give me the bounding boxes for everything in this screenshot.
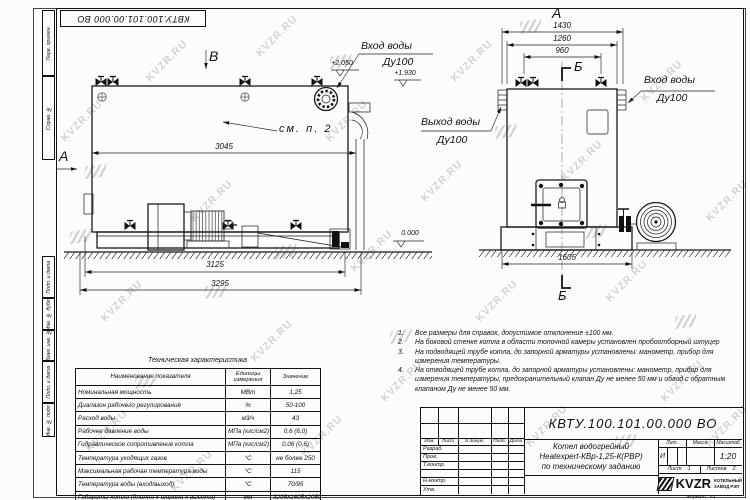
tech-table-cell: % [226,399,271,412]
tech-table-row: Температура воды (вход/выход)°С70/95 [76,478,321,491]
tech-table-cell: 0,6 (6,0) [271,425,321,438]
tech-table-cell: не более 250 [271,451,321,464]
frame-left-label: Подп. и дата [46,261,52,293]
frame-left-cell: Подп. и дата [42,256,55,298]
tb-title-line3: по техническому заданию [542,462,641,472]
tech-table-row: Диапазон рабочего регулирования%50-100 [76,399,321,412]
tech-table-cell: 0,06 (0,6) [271,438,321,451]
tech-table-row: Температура уходящих газов°Сне более 250 [76,451,321,464]
frame-left-label: Подп. и дата [46,366,52,398]
tech-table-cell: °С [226,478,271,491]
format-value: А3 [710,495,716,500]
level-2050: +2.050 [327,60,357,67]
frame-left-label: Перв. примен. [46,26,52,60]
tb-staff-razrab: Разраб. [421,445,460,453]
front-outlet-label: Выход воды [421,116,480,128]
note-item: 1.Все размеры для справок, допустимое от… [398,329,736,338]
tech-table-cell: 115 [271,465,321,478]
kvzr-logo-text: KVZR [676,476,711,491]
tech-table-cell: Диапазон рабочего регулирования [76,399,226,412]
dim-1260: 1260 [542,34,582,43]
tech-col-name: Наименование показателя [76,369,226,386]
tech-table-row: Гидравлическое сопротивление котлаМПа (к… [76,438,321,451]
frame-left-label: Инв. № дубл. [46,298,52,330]
dim-1605: 1605 [547,253,587,262]
view-label-b: В [209,48,218,64]
tb-staff-nkontr: Н.контр. [421,477,460,485]
frame-left-cell: Перв. примен. [42,10,55,76]
tb-sheet-label: Лист [667,466,681,472]
top-stamp-doc-number: КВТУ.100.101.00.000 ВО [77,14,190,24]
tb-staff-empty [421,469,460,477]
tech-table-cell: Габариты котла (длинна х ширина х высота… [76,491,226,500]
tech-table-cell: Номинальная мощность [76,386,226,399]
tb-title-line1: Котел водогрейный [553,442,629,452]
tech-table-cell: 1,25 [271,386,321,399]
format-label: Формат [687,495,706,500]
note-number: 1. [398,329,415,338]
tech-table-cell: м3/ч [226,412,271,425]
kvzr-company-line1: КОТЕЛЬНЫЙ [714,478,742,483]
tb-col-list: Лист [438,438,458,445]
frame-left-label: Взам. инв. № [46,329,52,361]
tb-staff-utv: Утв. [421,485,460,494]
top-document-stamp: КВТУ.100.101.00.000 ВО [60,10,206,27]
tb-col-podp: Подп. [491,438,508,445]
frame-left-cell: Инв. № подл. [42,403,55,437]
drawing-sheet: KVZR.RUKVZR.RUKVZR.RUKVZR.RUKVZR.RUKVZR.… [0,0,750,500]
tech-table-cell: МПа (кгс/см2) [226,425,271,438]
dim-3295: 3295 [200,279,240,288]
tech-table-cell: МВт [226,386,271,399]
front-inlet-label: Вход воды [644,74,695,86]
section-label-a: А [59,148,68,164]
kvzr-company-line2: ЗАВОД РЭП [714,484,742,489]
note-number: 2. [398,338,415,347]
note-text: На подводящей трубе котла, до запорной а… [415,348,736,367]
notes-list: 1.Все размеры для справок, допустимое от… [398,329,736,394]
tech-table-cell: Рабочее давление воды [76,425,226,438]
front-inlet-dn: Ду100 [657,92,687,104]
tech-col-value: Значение [271,369,321,386]
tech-table-cell: мм [226,491,271,500]
dim-960: 960 [544,46,580,55]
front-outlet-dn: Ду100 [437,134,467,146]
format-note: Формат А3 [658,495,744,500]
frame-left-cell: Инв. № дубл. [42,298,55,330]
tech-table-cell: °С [226,465,271,478]
tech-table-cell: 43 [271,412,321,425]
note-item: 4.На отводящей трубе котла, до запорной … [398,366,736,394]
view-label-a-front: А [552,5,561,21]
tech-table-cell: Максимальная рабочая температура воды [76,465,226,478]
tb-sheets-value: 2 [732,466,735,472]
note-number: 3. [398,348,415,367]
tb-staff-prov: Пров. [421,453,460,461]
tech-table-cell: 70/95 [271,478,321,491]
note-item: 3.На подводящей трубе котла, до запорной… [398,348,736,367]
tb-col-data: Дата [508,438,524,445]
see-note-label: см. п. 2 [279,123,332,135]
tb-col-izm: Изм. [421,438,438,445]
tech-table-row: Габариты котла (длинна х ширина х высота… [76,491,321,500]
tb-col-ndoc: N докум. [458,438,491,445]
tech-table-cell: °С [226,451,271,464]
tb-lit-header: Лит. [658,439,686,447]
frame-left-cell: Справ. № [42,76,55,160]
kvzr-company-name: КОТЕЛЬНЫЙ ЗАВОД РЭП [714,478,742,488]
tb-title: Котел водогрейный Heatexpert-КВр-1,25-К(… [524,439,658,475]
tech-table-cell: 3295х1605х2050 [271,491,321,500]
tb-logo-area: KVZR КОТЕЛЬНЫЙ ЗАВОД РЭП [658,473,742,494]
tech-table-cell: Расход воды [76,412,226,425]
note-text: На отводящей трубе котла, до запорной ар… [415,366,736,394]
tb-sheet-value: 1 [688,466,691,472]
tech-table-row: Расход водым3/ч43 [76,412,321,425]
section-label-b-bottom: Б [558,288,566,303]
dim-3045: 3045 [204,142,244,151]
tech-table-title: Техническая характеристика [75,357,320,364]
tech-table-row: Максимальная рабочая температура воды°С1… [76,465,321,478]
level-1930: +1.930 [390,70,420,77]
tech-table-row: Номинальная мощностьМВт1,25 [76,386,321,399]
side-inlet-dn: Ду100 [383,56,413,68]
note-text: На боковой стенке котла в области топочн… [415,338,720,347]
note-item: 2.На боковой стенке котла в области топо… [398,338,736,347]
tech-table-cell: МПа (кгс/см2) [226,438,271,451]
note-text: Все размеры для справок, допустимое откл… [415,329,614,338]
level-0000: 0.000 [395,230,425,237]
kvzr-logo-icon [657,477,675,491]
tb-scale-header: Масштаб [714,439,742,447]
frame-left-label: Инв. № подл. [46,404,52,437]
tech-col-units: Единицы измерения [226,369,271,386]
tb-staff-tkontr: Т.контр. [421,461,460,469]
dim-3125: 3125 [195,260,235,269]
tb-lit-value: И [658,447,667,465]
tb-doc-number: КВТУ.100.101.00.000 ВО [524,408,742,439]
title-block: Изм. Лист N докум. Подп. Дата Разраб. Пр… [420,407,744,496]
tech-table-cell: Температура уходящих газов [76,451,226,464]
tech-table-row: Рабочее давление водыМПа (кгс/см2)0,6 (6… [76,425,321,438]
tech-table-cell: Температура воды (вход/выход) [76,478,226,491]
frame-left-cell: Взам. инв. № [42,330,55,361]
tech-table-body: Номинальная мощностьМВт1,25Диапазон рабо… [76,386,321,500]
tb-sheet: Лист 1 [658,465,700,473]
tech-table-cell: 50-100 [271,399,321,412]
tech-table-cell: Гидравлическое сопротивление котла [76,438,226,451]
tb-scale-value: 1:20 [714,447,742,465]
side-inlet-label: Вход воды [361,40,412,52]
note-number: 4. [398,366,415,394]
section-label-b-top: Б [574,59,582,74]
dim-1430: 1430 [542,21,582,30]
tech-table: Наименование показателя Единицы измерени… [75,368,321,500]
tb-sheets: Листов 2 [700,465,742,473]
tb-title-line2: Heatexpert-КВр-1,25-К(РВР) [539,452,642,462]
frame-left-label: Справ. № [46,106,52,130]
tb-sheets-label: Листов [706,466,726,472]
frame-left-cell: Подп. и дата [42,361,55,403]
tb-mass-header: Масса [686,439,714,447]
